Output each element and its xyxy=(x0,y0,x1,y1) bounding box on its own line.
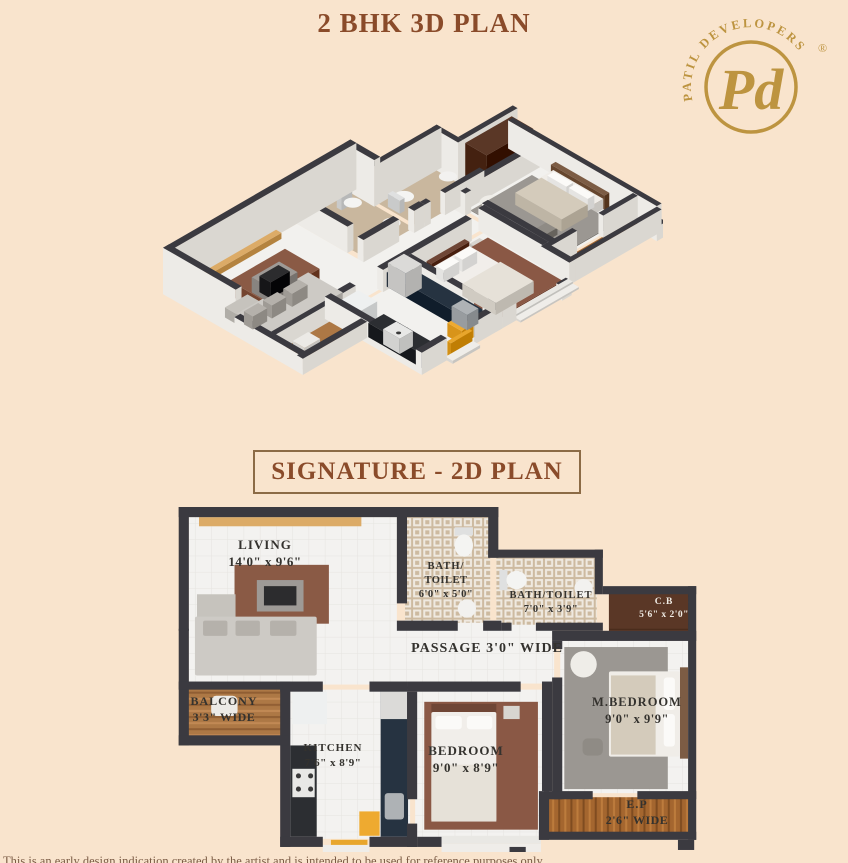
room-label-ep: E.P 2'6" WIDE xyxy=(606,797,669,829)
3d-floor-plan-illustration xyxy=(158,56,663,401)
room-label-balcony: BALCONY 3'3" WIDE xyxy=(190,694,257,726)
room-label-living: LIVING 14'0" x 9'6" xyxy=(228,536,301,570)
room-label-kitchen: KITCHEN 7'6" x 8'9" xyxy=(304,741,363,770)
2d-plan-title-box: SIGNATURE - 2D PLAN xyxy=(253,450,581,494)
room-label-cb: C.B 5'6" x 2'0" xyxy=(639,596,689,621)
registered-mark-icon: ® xyxy=(818,41,827,55)
room-label-bath-toilet-1: BATH/ TOILET 6'0" x 5'0" xyxy=(419,560,474,602)
room-label-bedroom: BEDROOM 9'0" x 8'9" xyxy=(428,742,504,776)
2d-plan-title: SIGNATURE - 2D PLAN xyxy=(271,458,562,486)
disclaimer-text: This is an early design indication creat… xyxy=(3,854,843,863)
room-label-mbedroom: M.BEDROOM 9'0" x 9'9" xyxy=(592,694,682,727)
brochure-page: 2 BHK 3D PLAN PATIL DEVELOPERS ® Pd SIGN… xyxy=(0,0,848,863)
developer-logo: PATIL DEVELOPERS ® Pd xyxy=(678,12,843,162)
3d-plan-svg xyxy=(158,56,663,401)
room-label-passage: PASSAGE 3'0" WIDE xyxy=(411,640,563,658)
logo-monogram: Pd xyxy=(718,57,784,122)
room-label-bath-toilet-2: BATH/TOILET 7'0" x 3'9" xyxy=(510,589,593,617)
developer-logo-graphic: PATIL DEVELOPERS ® Pd xyxy=(678,12,843,162)
